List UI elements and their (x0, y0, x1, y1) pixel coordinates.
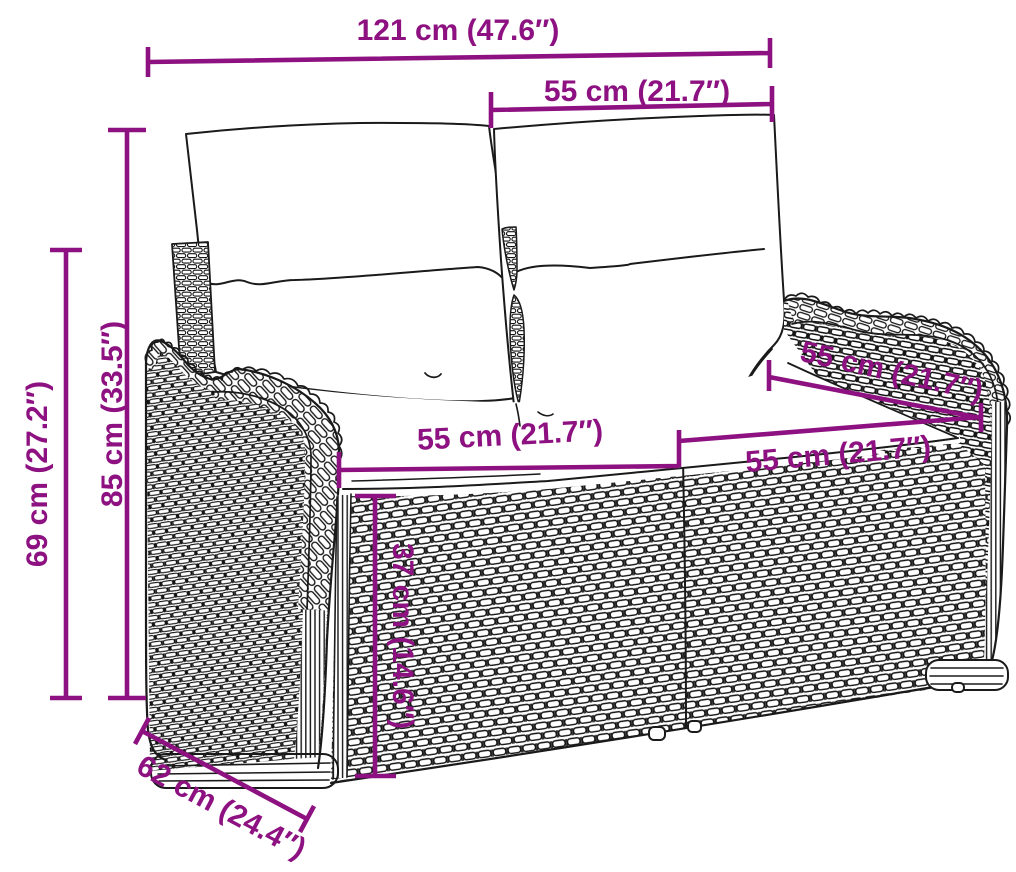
svg-text:37 cm (14.6″): 37 cm (14.6″) (386, 543, 419, 729)
svg-text:69 cm (27.2″): 69 cm (27.2″) (21, 381, 54, 567)
svg-text:121 cm (47.6″): 121 cm (47.6″) (357, 14, 560, 47)
svg-text:55 cm (21.7″): 55 cm (21.7″) (544, 75, 730, 108)
svg-text:85 cm (33.5″): 85 cm (33.5″) (96, 321, 129, 507)
